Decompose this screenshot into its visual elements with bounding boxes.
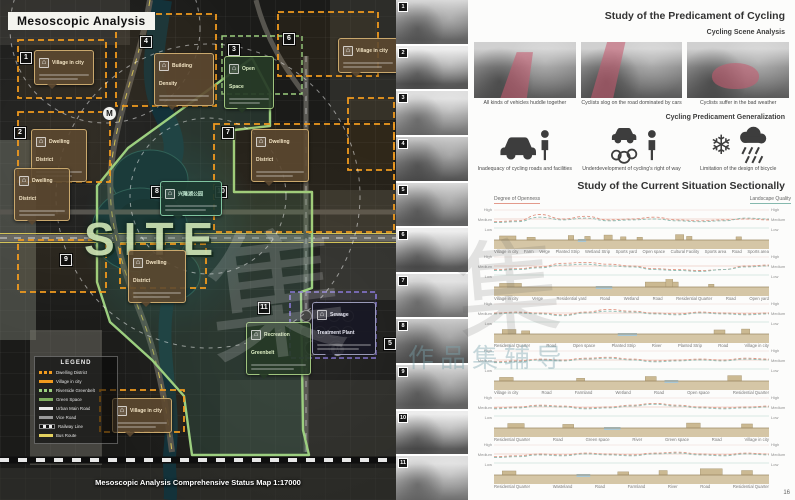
scene-caption: All kinds of vehicles huddle together: [474, 100, 576, 106]
callout-building-icon: ⌂: [19, 176, 29, 186]
photo-number-badge: 11: [398, 458, 408, 468]
callout-building-icon: ⌂: [159, 61, 169, 71]
level-label: Medium: [771, 312, 791, 316]
legend-label: Bus Route: [56, 433, 77, 438]
car-exhaust-pedestrian-icon: [603, 124, 661, 164]
photo-number-badge: 2: [398, 48, 408, 58]
legend-row: Vice Road: [39, 413, 113, 422]
segment-label: Road: [546, 343, 556, 348]
callout-text-line: [229, 98, 269, 100]
scene-caption: Cyclists slog on the road dominated by c…: [581, 100, 683, 106]
callout-tail: [141, 302, 151, 307]
segment-label: Road: [732, 249, 742, 254]
section-curves: [494, 302, 769, 326]
openness-curve: [494, 357, 769, 362]
level-label: Low: [485, 228, 492, 232]
section-diagram-3: HighMediumLowHighMediumLowResidential Qu…: [472, 302, 791, 349]
section-terrain: [494, 373, 769, 390]
map-callout-10: ⌂Recreation Greenbelt: [246, 322, 311, 375]
section-diagram-5: HighMediumLowHighMediumLowResidential Qu…: [472, 396, 791, 443]
level-label: Low: [771, 463, 791, 467]
segment-label: Cultural Facility: [671, 249, 700, 254]
legend-label: Railway Line: [58, 424, 83, 429]
snow-rain-icon: ❄: [709, 124, 767, 164]
predicament-caption: Inadequacy of cycling roads and faciliti…: [474, 166, 576, 172]
scene-photo-2: Cyclists slog on the road dominated by c…: [581, 42, 683, 106]
segment-label: Road: [654, 390, 664, 395]
map-marker-7: 7: [222, 127, 234, 139]
legend-swatch: [39, 371, 53, 374]
photo-number-badge: 7: [398, 276, 408, 286]
site-photo-5: 5: [396, 183, 468, 227]
predicament-caption: Underdevelopment of cycling's right of w…: [581, 166, 683, 172]
segment-label: Farmland: [575, 390, 593, 395]
legend-label: Village in city: [56, 379, 82, 384]
predicament-3: ❄ Limitation of the design of bicycle: [687, 124, 789, 172]
section-curves: [494, 396, 769, 420]
map-marker-4: 4: [140, 36, 152, 48]
section-curves: [494, 443, 769, 467]
callout-text-line: [165, 205, 217, 207]
legend-swatch: [39, 416, 53, 419]
segment-label: Wetland Strip: [585, 249, 610, 254]
car-icon: [500, 137, 536, 159]
map-callout-3: ⌂Open Space: [224, 56, 274, 109]
level-label: Low: [771, 322, 791, 326]
segment-label: Road: [542, 390, 552, 395]
scene-photo-image: [687, 42, 789, 98]
legend-label: Urban Main Road: [56, 406, 90, 411]
level-labels-left: HighMediumLow: [472, 396, 492, 420]
segment-label: Wetland: [616, 390, 631, 395]
segment-label: Open yard: [749, 296, 769, 301]
legend-swatch: [39, 424, 55, 429]
section-terrain: [494, 420, 769, 437]
cyclist-highlight: [712, 63, 759, 89]
segment-label: Residential Quarter: [494, 484, 530, 489]
callout-title: Village in city: [130, 408, 162, 414]
section-diagram-6: HighMediumLowHighMediumLowResidential Qu…: [472, 443, 791, 490]
segment-label: Residential Quarter: [676, 296, 712, 301]
segment-label: Wetland: [624, 296, 639, 301]
legend-row: Riverside Greenbelt: [39, 386, 113, 395]
map-callout-11: ⌂Sewage Treatment Plant: [312, 302, 376, 355]
callout-text-line: [251, 364, 306, 366]
level-label: High: [484, 396, 492, 400]
predicament-1: Inadequacy of cycling roads and faciliti…: [474, 124, 576, 172]
segment-label: Village in city: [494, 390, 518, 395]
cycling-study-panel: Study of the Predicament of Cycling Cycl…: [468, 0, 795, 500]
level-label: Medium: [478, 359, 492, 363]
site-photo-11: 11: [396, 456, 468, 500]
level-label: Low: [485, 416, 492, 420]
map-callout-2: ⌂Building Density: [154, 53, 214, 106]
segment-label: Sports area: [747, 249, 769, 254]
level-label: Medium: [478, 218, 492, 222]
level-label: Low: [771, 416, 791, 420]
quality-curve: [494, 311, 769, 316]
level-label: Low: [485, 322, 492, 326]
section-segment-labels: Residential QuarterWastelandRoadFarmland…: [494, 484, 769, 489]
photo-number-badge: 10: [398, 413, 408, 423]
level-label: High: [771, 302, 791, 306]
section-terrain: [494, 279, 769, 296]
level-labels-right: HighMediumLow: [771, 349, 791, 373]
callout-title: Village in city: [356, 48, 388, 54]
level-label: High: [771, 396, 791, 400]
site-photo-8: 8: [396, 319, 468, 363]
section-segment-labels: Residential QuarterRoadOpen spacePlanted…: [494, 343, 769, 348]
level-labels-left: HighMediumLow: [472, 443, 492, 467]
segment-label: Village in city: [494, 296, 518, 301]
photo-number-badge: 6: [398, 230, 408, 240]
photo-number-badge: 4: [398, 139, 408, 149]
callout-tail: [125, 432, 135, 437]
level-label: Medium: [478, 453, 492, 457]
segment-label: River: [652, 343, 662, 348]
sections-header: Degree of Openness Landscape Quality: [472, 196, 791, 208]
segment-label: Road: [726, 296, 736, 301]
photo-number-badge: 9: [398, 367, 408, 377]
section-curves: [494, 255, 769, 279]
callout-building-icon: ⌂: [256, 137, 266, 147]
level-label: High: [484, 349, 492, 353]
map-callout-5: ⌂Dwelling District: [251, 129, 309, 182]
presentation-board: Mesoscopic Analysis SITE M M 12345678910…: [0, 0, 795, 500]
level-label: High: [484, 302, 492, 306]
level-label: High: [484, 255, 492, 259]
segment-label: Road: [712, 437, 722, 442]
callout-text-line: [251, 368, 294, 370]
segment-label: Open space: [687, 390, 710, 395]
level-label: High: [484, 208, 492, 212]
level-label: Medium: [771, 218, 791, 222]
segment-label: Road: [700, 484, 710, 489]
segment-label: Residential Quarter: [494, 343, 530, 348]
sections-title: Study of the Current Situation Sectional…: [577, 180, 785, 192]
predicament-title: Study of the Predicament of Cycling: [605, 10, 785, 22]
pedestrian-icon: [541, 130, 549, 138]
rain-cloud-icon: [740, 127, 766, 144]
level-labels-left: HighMediumLow: [472, 302, 492, 326]
map-marker-3: 3: [228, 44, 240, 56]
callout-title: Village in city: [52, 60, 84, 66]
site-photo-1: 1: [396, 0, 468, 44]
map-marker-6: 6: [283, 33, 295, 45]
map-marker-2: 2: [14, 127, 26, 139]
legend-swatch: [39, 389, 53, 392]
legend-row: Urban Main Road: [39, 404, 113, 413]
level-label: High: [771, 208, 791, 212]
callout-building-icon: ⌂: [165, 189, 175, 199]
legend-title: LEGEND: [39, 360, 113, 366]
segment-label: Village in city: [745, 437, 769, 442]
callout-tail: [259, 374, 269, 379]
segment-label: Planted Strip: [678, 343, 702, 348]
segment-label: Green space: [586, 437, 610, 442]
segment-label: Wasteland: [553, 484, 573, 489]
callout-tail: [237, 108, 247, 113]
callout-building-icon: ⌂: [229, 64, 239, 74]
callout-building-icon: ⌂: [317, 310, 327, 320]
level-labels-right: HighMediumLow: [771, 396, 791, 420]
generalization-subtitle: Cycling Predicament Generalization: [666, 114, 785, 121]
legend-row: Railway Line: [39, 422, 113, 431]
level-label: Medium: [478, 265, 492, 269]
callout-text-line: [117, 422, 167, 424]
scene-analysis-subtitle: Cycling Scene Analysis: [707, 29, 785, 36]
segment-label: Verge: [539, 249, 550, 254]
section-terrain: [494, 326, 769, 343]
callout-text-line: [19, 214, 55, 216]
segment-label: Residential Quarter: [733, 390, 769, 395]
map-legend: LEGEND Dwelling DistrictVillage in cityR…: [34, 356, 118, 444]
page-number: 16: [783, 490, 790, 496]
section-diagram-1: HighMediumLowHighMediumLowVillage in cit…: [472, 208, 791, 255]
legend-label: Green Space: [56, 397, 82, 402]
callout-text-line: [159, 99, 198, 101]
section-diagram-2: HighMediumLowHighMediumLowVillage in cit…: [472, 255, 791, 302]
legend-row: Village in city: [39, 377, 113, 386]
callout-building-icon: ⌂: [343, 46, 353, 56]
segment-label: Planted Strip: [556, 249, 580, 254]
level-label: High: [771, 349, 791, 353]
callout-tail: [325, 354, 335, 359]
site-photo-4: 4: [396, 137, 468, 181]
segment-label: Sports area: [705, 249, 727, 254]
exhaust-icon: [612, 150, 636, 163]
cycle-lane-highlight: [581, 42, 683, 98]
legend-label: Vice Road: [56, 415, 76, 420]
legend-swatch: [39, 398, 53, 401]
legend-swatch: [39, 380, 53, 383]
level-label: Medium: [478, 406, 492, 410]
level-label: Low: [771, 228, 791, 232]
map-marker-1: 1: [20, 52, 32, 64]
sections-area: Degree of Openness Landscape Quality Hig…: [472, 196, 791, 490]
map-marker-5: 5: [384, 338, 396, 350]
map-marker-11: 11: [258, 302, 270, 314]
segment-label: Open space: [642, 249, 665, 254]
scene-photo-image: [474, 42, 576, 98]
callout-tail: [173, 215, 183, 220]
level-label: High: [771, 443, 791, 447]
level-labels-left: HighMediumLow: [472, 349, 492, 373]
level-label: Low: [485, 369, 492, 373]
callout-building-icon: ⌂: [133, 258, 143, 268]
legend-swatch: [39, 434, 53, 437]
callout-building-icon: ⌂: [117, 406, 127, 416]
callout-tail: [351, 72, 361, 77]
level-label: Medium: [771, 359, 791, 363]
level-labels-right: HighMediumLow: [771, 302, 791, 326]
callout-text-line: [165, 209, 206, 211]
callout-tail: [264, 181, 274, 186]
map-callout-4: ⌂Village in city: [338, 38, 396, 73]
callout-building-icon: ⌂: [36, 137, 46, 147]
callout-text-line: [343, 66, 382, 68]
callout-text-line: [39, 74, 89, 76]
level-labels-right: HighMediumLow: [771, 208, 791, 232]
scene-photo-1: All kinds of vehicles huddle together: [474, 42, 576, 106]
segment-label: Farm: [524, 249, 534, 254]
site-photo-2: 2: [396, 46, 468, 90]
photo-number-badge: 5: [398, 185, 408, 195]
segment-label: Farmland: [628, 484, 646, 489]
cycle-lane-highlight: [474, 42, 576, 98]
map-callout-8: ⌂兴隆湖公园: [160, 181, 222, 216]
callout-text-line: [19, 210, 65, 212]
callout-text-line: [317, 344, 371, 346]
legend-row: Green Space: [39, 395, 113, 404]
legend-row: Bus Route: [39, 431, 113, 440]
map-callout-7: ⌂Dwelling District: [14, 168, 70, 221]
predicament-2: Underdevelopment of cycling's right of w…: [581, 124, 683, 172]
segment-label: Village in city: [494, 249, 518, 254]
callout-text-line: [256, 171, 304, 173]
segment-label: River: [632, 437, 642, 442]
section-segment-labels: Village in cityRoadFarmlandWetlandRoadOp…: [494, 390, 769, 395]
metro-station-icon: M: [102, 106, 117, 121]
callout-tail: [47, 84, 57, 89]
segment-label: Sports yard: [616, 249, 637, 254]
legend-swatch: [39, 407, 53, 410]
site-photo-9: 9: [396, 365, 468, 409]
site-photo-3: 3: [396, 91, 468, 135]
segment-label: Road: [553, 437, 563, 442]
cycling-scenes-row: All kinds of vehicles huddle together Cy…: [474, 42, 789, 106]
landscape-quality-label: Landscape Quality: [750, 196, 791, 204]
mesoscopic-analysis-map: Mesoscopic Analysis SITE M M 12345678910…: [0, 0, 396, 500]
segment-label: Residential Quarter: [733, 484, 769, 489]
site-photo-7: 7: [396, 274, 468, 318]
callout-text-line: [256, 175, 293, 177]
site-photo-10: 10: [396, 411, 468, 455]
site-photo-6: 6: [396, 228, 468, 272]
map-callout-1: ⌂Village in city: [34, 50, 94, 85]
segment-label: Residential Quarter: [494, 437, 530, 442]
segment-label: River: [668, 484, 678, 489]
level-label: Low: [771, 275, 791, 279]
segment-label: Village in city: [745, 343, 769, 348]
section-segment-labels: Residential QuarterRoadGreen spaceRiverG…: [494, 437, 769, 442]
section-segment-labels: Village in cityFarmVergePlanted StripWet…: [494, 249, 769, 254]
predicament-caption: Limitation of the design of bicycle: [687, 166, 789, 172]
segment-label: Road: [718, 343, 728, 348]
level-label: High: [771, 255, 791, 259]
section-curves: [494, 349, 769, 373]
segment-label: Verge: [532, 296, 543, 301]
callout-tail: [27, 220, 37, 225]
segment-label: Road: [595, 484, 605, 489]
section-diagram-4: HighMediumLowHighMediumLowVillage in cit…: [472, 349, 791, 396]
level-labels-right: HighMediumLow: [771, 443, 791, 467]
segment-label: Road: [600, 296, 610, 301]
rain-icon: [743, 147, 763, 163]
site-photo-strip: 1234567891011: [396, 0, 468, 500]
section-segment-labels: Village in cityVergeResidential yardRoad…: [494, 296, 769, 301]
segment-label: Open space: [573, 343, 596, 348]
level-labels-left: HighMediumLow: [472, 255, 492, 279]
level-label: Medium: [478, 312, 492, 316]
predicament-icons-row: Inadequacy of cycling roads and faciliti…: [474, 124, 789, 172]
level-labels-right: HighMediumLow: [771, 255, 791, 279]
section-curves: [494, 208, 769, 232]
callout-building-icon: ⌂: [251, 330, 261, 340]
degree-of-openness-label: Degree of Openness: [494, 196, 540, 204]
map-scale-caption: Mesoscopic Analysis Comprehensive Status…: [95, 478, 301, 487]
callout-text-line: [343, 62, 393, 64]
level-label: Low: [771, 369, 791, 373]
map-callout-9: ⌂Dwelling District: [128, 250, 186, 303]
legend-label: Riverside Greenbelt: [56, 388, 95, 393]
callout-text-line: [117, 426, 156, 428]
segment-label: Road: [653, 296, 663, 301]
callout-building-icon: ⌂: [39, 58, 49, 68]
callout-text-line: [39, 78, 78, 80]
level-label: High: [484, 443, 492, 447]
callout-text-line: [133, 296, 170, 298]
callout-title: 兴隆湖公园: [178, 191, 203, 197]
map-title: Mesoscopic Analysis: [8, 12, 155, 30]
photo-number-badge: 8: [398, 321, 408, 331]
callout-text-line: [317, 348, 359, 350]
segment-label: Green space: [665, 437, 689, 442]
level-label: Low: [485, 463, 492, 467]
quality-curve: [494, 264, 769, 271]
section-terrain: [494, 467, 769, 484]
map-marker-9: 9: [60, 254, 72, 266]
scene-photo-3: Cyclists suffer in the bad weather: [687, 42, 789, 106]
level-label: Medium: [771, 406, 791, 410]
legend-row: Dwelling District: [39, 368, 113, 377]
segment-label: Residential yard: [556, 296, 586, 301]
photo-number-badge: 1: [398, 2, 408, 12]
callout-text-line: [159, 95, 209, 97]
segment-label: Planted Strip: [612, 343, 636, 348]
map-callout-12: ⌂Village in city: [112, 398, 172, 433]
level-label: Medium: [771, 453, 791, 457]
pedestrian-icon: [648, 130, 656, 138]
level-label: Medium: [771, 265, 791, 269]
section-terrain: [494, 232, 769, 249]
level-label: Low: [485, 275, 492, 279]
snowflake-icon: ❄: [710, 130, 732, 160]
callout-text-line: [133, 292, 181, 294]
scene-caption: Cyclists suffer in the bad weather: [687, 100, 789, 106]
callout-text-line: [229, 102, 260, 104]
callout-tail: [167, 105, 177, 110]
photo-number-badge: 3: [398, 93, 408, 103]
car-pedestrian-icon: [496, 124, 554, 164]
legend-label: Dwelling District: [56, 370, 87, 375]
level-labels-left: HighMediumLow: [472, 208, 492, 232]
scene-photo-image: [581, 42, 683, 98]
